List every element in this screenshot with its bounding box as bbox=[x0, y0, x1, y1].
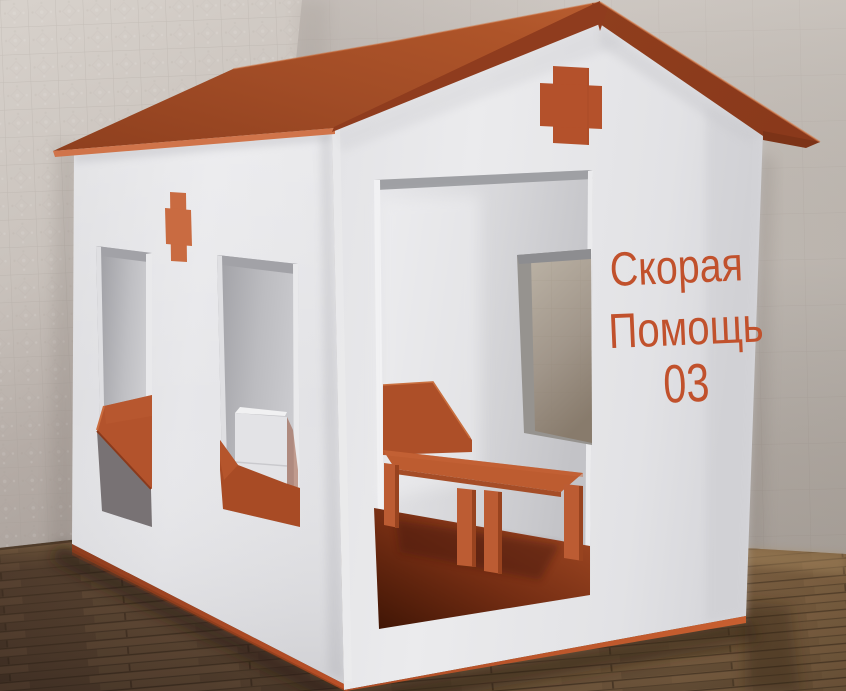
svg-text:Скорая: Скорая bbox=[609, 238, 744, 297]
svg-text:Помощь: Помощь bbox=[607, 298, 764, 359]
svg-text:03: 03 bbox=[662, 353, 711, 415]
